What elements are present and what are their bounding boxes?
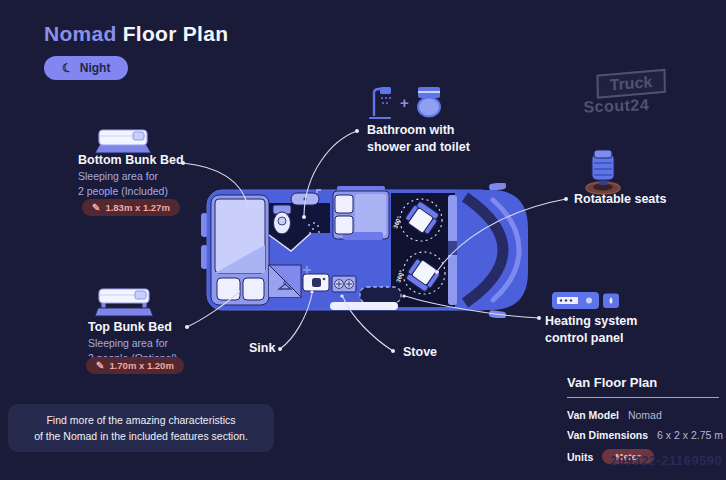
toilet-icon [415,86,443,118]
rotatable-seat-icon [580,148,626,196]
plus-icon: + [400,94,409,111]
logo-scout24: Scout24 [583,96,666,117]
top-bunk-bed-icon [93,282,155,320]
heating-label: Heating system control panel [545,313,637,347]
top-bunk-dimensions-badge: ✎ 1.70m x 1.20m [86,355,184,374]
page-title: NomadFloor Plan [44,22,228,46]
sink-label: Sink [249,340,275,357]
stove-label: Stove [403,344,437,361]
night-mode-toggle[interactable]: ☾ Night [44,56,128,80]
page-title-accent: Nomad [44,22,117,45]
floor-plan-infographic: NomadFloor Plan ☾ Night Truck Scout24 Bo… [0,0,726,480]
bottom-bunk-dimensions-badge: ✎ 1.83m x 1.27m [82,197,180,216]
bottom-bunk-title: Bottom Bunk Bed [78,153,184,167]
spec-row-model: Van Model Nomad [567,409,719,421]
page-title-rest: Floor Plan [123,22,229,45]
bottom-bunk-subtitle: Sleeping area for 2 people (Included) [78,169,168,199]
van-dinette [333,191,389,240]
spec-row-dimensions: Van Dimensions 6 x 2 x 2.75 m [567,429,719,441]
van-stove [332,276,356,292]
heating-panel-icon [552,292,620,310]
truckscout24-logo: Truck Scout24 [582,71,666,117]
pencil-icon: ✎ [96,360,104,371]
van-floorplan-illustration: 360° 360° [193,183,533,318]
night-mode-label: Night [80,61,111,75]
bathroom-label: Bathroom with shower and toilet [367,122,470,156]
features-note: Find more of the amazing characteristics… [8,404,274,452]
van-heating-panel-location [360,287,401,303]
moon-icon: ☾ [61,61,75,75]
bathroom-icons: + [368,84,443,120]
listing-id-watermark: 209322-21169590 [610,453,722,468]
logo-truck-box: Truck [596,69,665,99]
pencil-icon: ✎ [92,202,100,213]
van-entry-step [330,302,398,310]
top-bunk-title: Top Bunk Bed [88,320,172,334]
spec-panel-title: Van Floor Plan [567,375,719,398]
shower-icon [368,84,394,120]
bottom-bunk-bed-icon [92,121,154,157]
van-bed [211,195,269,305]
van-sink [303,274,329,291]
rotatable-seats-label: Rotatable seats [574,191,666,208]
